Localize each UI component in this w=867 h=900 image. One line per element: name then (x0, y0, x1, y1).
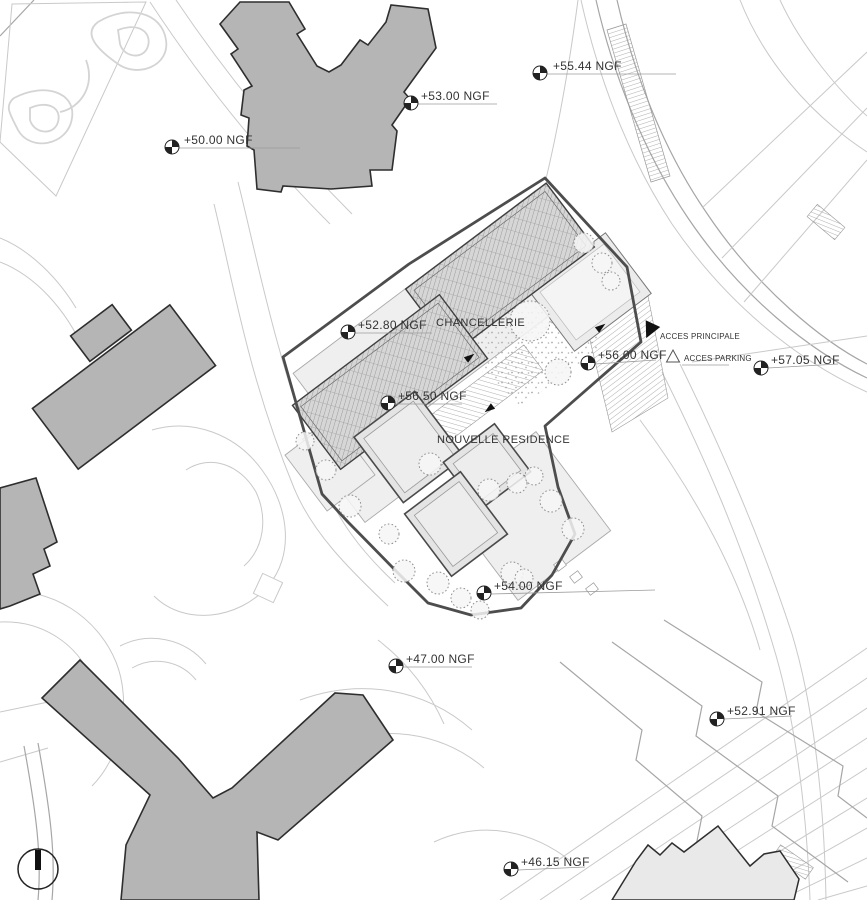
building-y-north (220, 2, 436, 192)
elevation-label: +56.50 NGF (398, 389, 467, 403)
benchmark-ngf-53-00: +53.00 NGF (404, 89, 497, 110)
project-site (283, 178, 668, 615)
elevation-label: +54.00 NGF (494, 579, 563, 593)
north-indicator (18, 849, 58, 889)
elevation-label: +53.00 NGF (421, 89, 490, 103)
building-y-south (42, 660, 393, 900)
benchmark-icon (381, 396, 395, 410)
nouvelle-residence-label: NOUVELLE RESIDENCE (437, 434, 570, 446)
elevation-label: +50.00 NGF (184, 133, 253, 147)
north-needle-icon (35, 850, 41, 870)
benchmark-ngf-54-00: +54.00 NGF (477, 579, 655, 600)
building-west-edge (0, 478, 57, 609)
elevation-label: +57.05 NGF (771, 353, 840, 367)
elevation-label: +47.00 NGF (406, 652, 475, 666)
landscape-path-squiggles (9, 12, 283, 602)
benchmark-icon (710, 712, 724, 726)
benchmark-icon (477, 586, 491, 600)
chancellerie-label: CHANCELLERIE (436, 317, 525, 329)
benchmark-ngf-47-00: +47.00 NGF (389, 652, 475, 673)
acces-parking-callout: ACCES PARKING (667, 350, 752, 365)
benchmark-ngf-46-15: +46.15 NGF (504, 855, 590, 876)
building-southeast-light (612, 826, 799, 900)
elevation-label: +52.91 NGF (727, 704, 796, 718)
benchmark-icon (389, 659, 403, 673)
elevation-label: +55.44 NGF (553, 59, 622, 73)
acces-parking-label: ACCES PARKING (684, 354, 752, 363)
benchmark-icon (754, 361, 768, 375)
site-plan-canvas: ACCES PRINCIPALE ACCES PARKING CHANCELLE… (0, 0, 867, 900)
benchmark-icon (581, 356, 595, 370)
benchmark-icon (165, 140, 179, 154)
elevation-label: +52.80 NGF (358, 318, 427, 332)
elevation-label: +46.15 NGF (521, 855, 590, 869)
acces-parking-triangle-icon (667, 350, 680, 362)
benchmark-icon (504, 862, 518, 876)
benchmark-icon (533, 66, 547, 80)
benchmark-icon (341, 325, 355, 339)
benchmark-ngf-52-91: +52.91 NGF (710, 704, 796, 726)
stair-hatch-strips (607, 24, 845, 879)
benchmark-ngf-55-44: +55.44 NGF (533, 59, 676, 80)
benchmark-icon (404, 96, 418, 110)
elevation-label: +56.00 NGF (598, 348, 667, 362)
acces-principale-label: ACCES PRINCIPALE (660, 332, 740, 341)
